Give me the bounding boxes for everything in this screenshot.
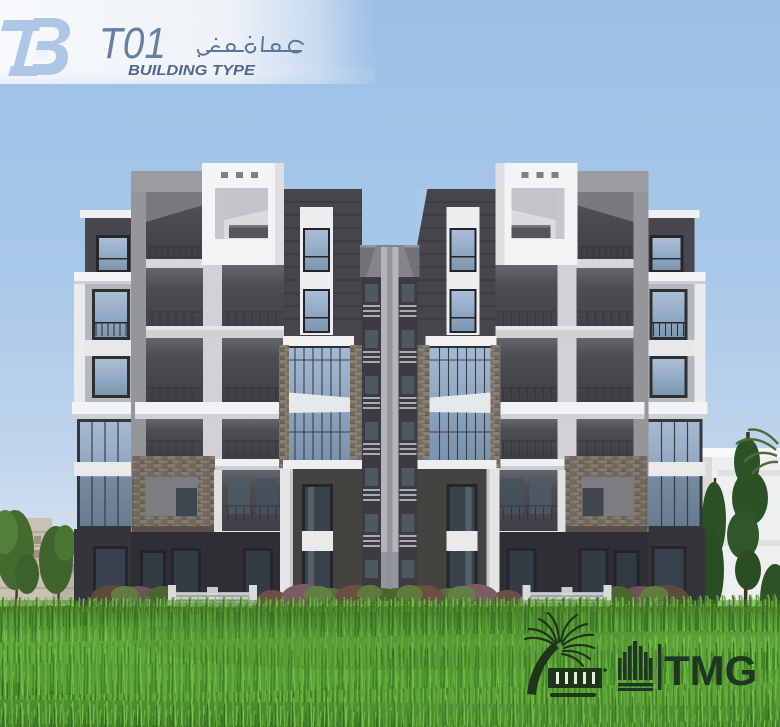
svg-text:T01: T01 (99, 19, 166, 68)
svg-text:BUILDING TYPE: BUILDING TYPE (128, 62, 256, 79)
svg-text:TMG: TMG (664, 647, 757, 694)
